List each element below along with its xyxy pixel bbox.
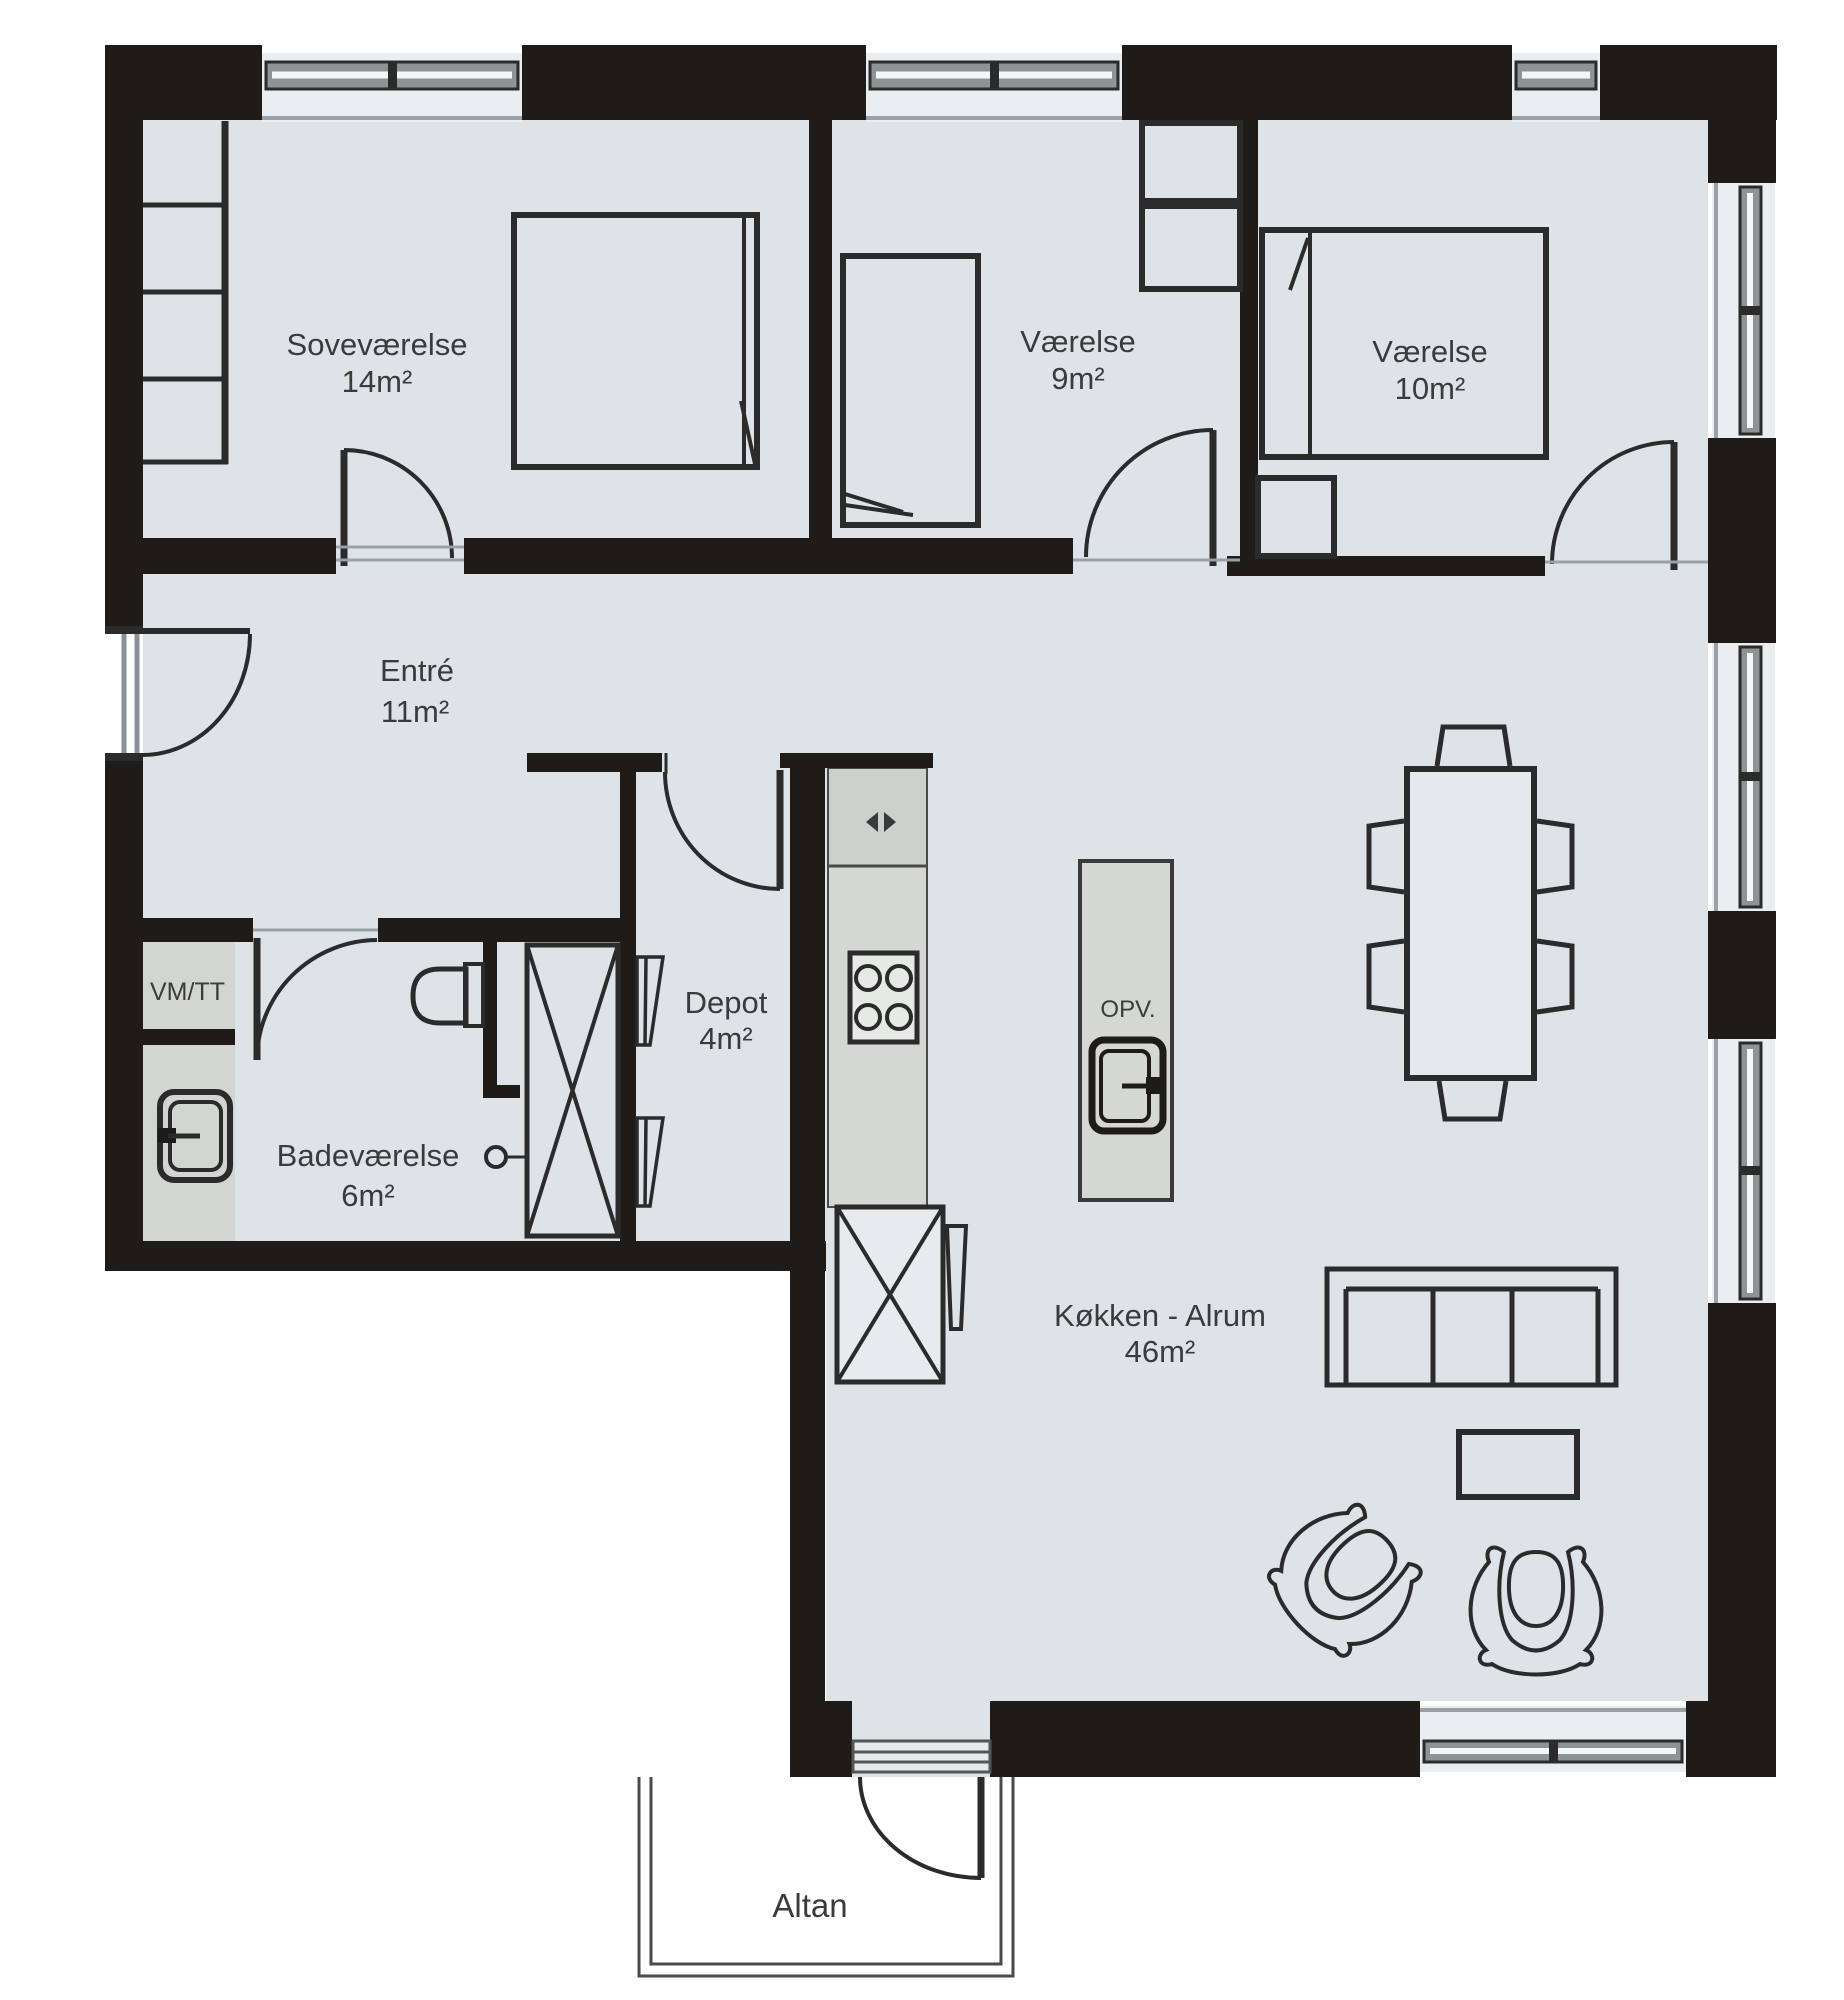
svg-text:14m²: 14m²: [342, 364, 413, 399]
svg-text:VM/TT: VM/TT: [150, 978, 225, 1006]
svg-text:9m²: 9m²: [1051, 361, 1104, 396]
svg-text:Værelse: Værelse: [1020, 324, 1135, 359]
svg-text:Køkken - Alrum: Køkken - Alrum: [1054, 1298, 1266, 1333]
svg-text:6m²: 6m²: [341, 1178, 394, 1213]
svg-text:Værelse: Værelse: [1372, 334, 1487, 369]
svg-text:46m²: 46m²: [1125, 1334, 1196, 1369]
svg-text:10m²: 10m²: [1395, 371, 1466, 406]
svg-text:11m²: 11m²: [381, 694, 449, 729]
svg-text:Entré: Entré: [380, 653, 454, 688]
svg-text:Soveværelse: Soveværelse: [287, 327, 468, 362]
svg-text:Altan: Altan: [772, 1887, 847, 1924]
svg-text:OPV.: OPV.: [1100, 996, 1155, 1023]
svg-text:Depot: Depot: [685, 985, 768, 1020]
svg-text:Badeværelse: Badeværelse: [277, 1138, 460, 1173]
svg-text:4m²: 4m²: [699, 1021, 752, 1056]
